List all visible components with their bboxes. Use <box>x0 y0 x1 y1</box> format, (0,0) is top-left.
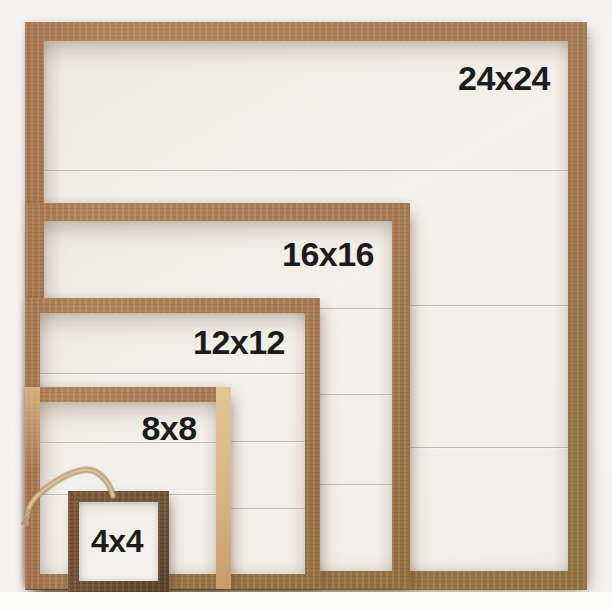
shiplap-groove <box>40 373 305 374</box>
wood-highlight-right <box>216 387 231 589</box>
photo-bottom-margin <box>0 592 612 610</box>
size-label-24x24: 24x24 <box>458 59 550 98</box>
size-label-8x8: 8x8 <box>141 409 196 448</box>
twine-hanger <box>6 450 136 535</box>
size-label-12x12: 12x12 <box>193 323 285 362</box>
shiplap-groove <box>44 170 568 171</box>
size-label-16x16: 16x16 <box>282 235 374 274</box>
twine-frayed-end <box>22 517 28 526</box>
product-photo: 24x24 16x16 12x12 8x8 4x4 <box>0 0 612 610</box>
